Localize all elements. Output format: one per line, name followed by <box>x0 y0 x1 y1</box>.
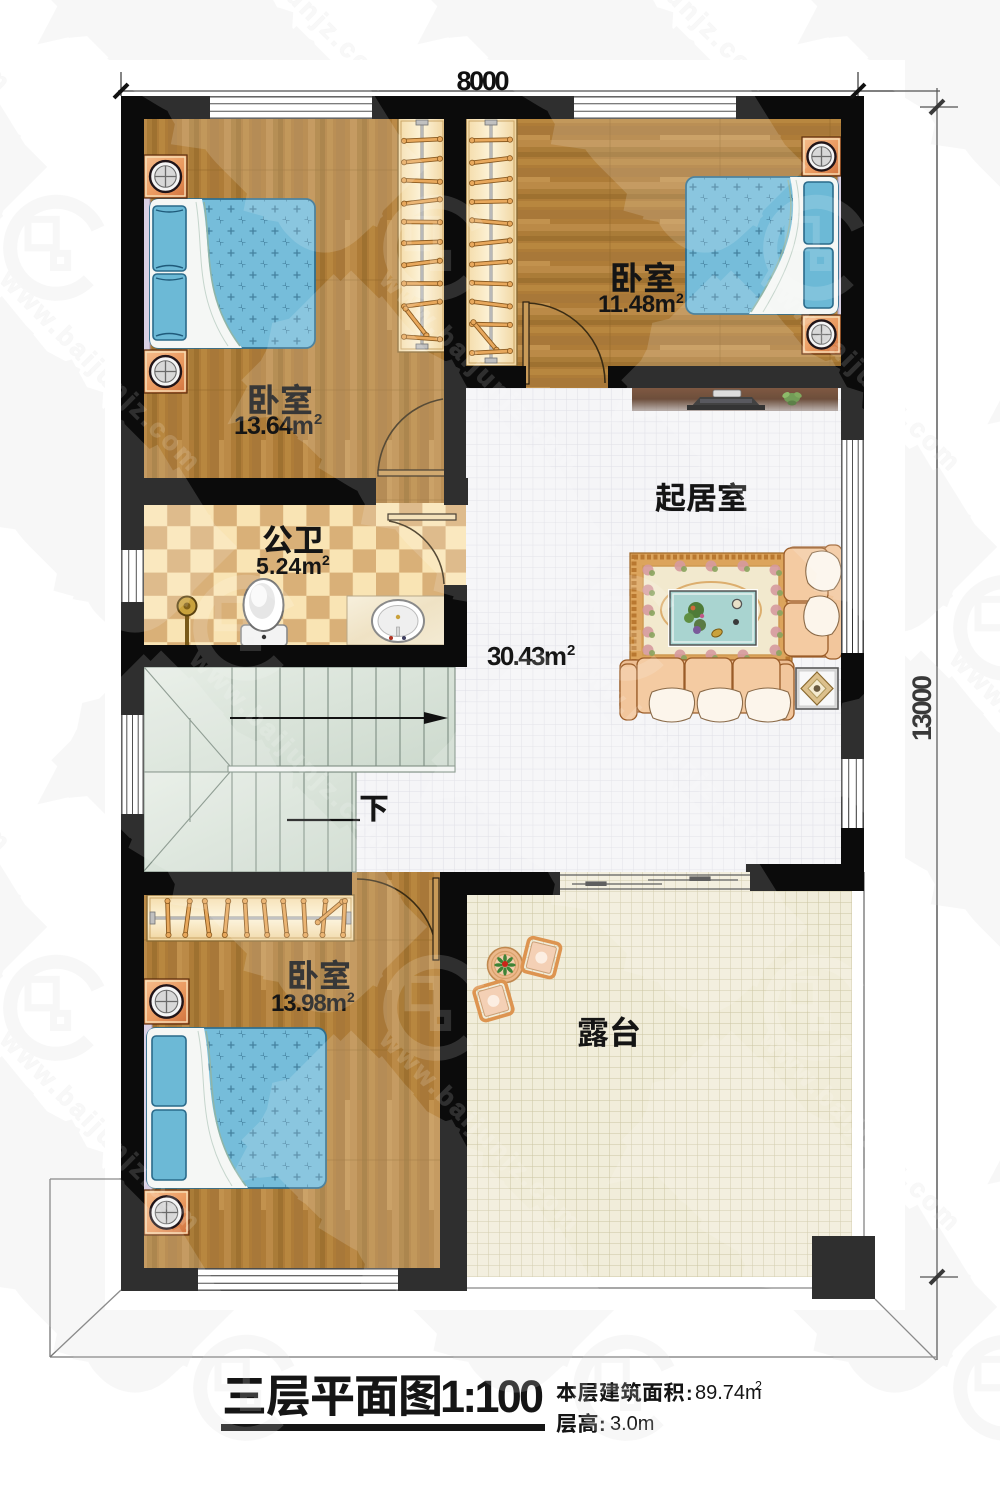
svg-text:11.48m: 11.48m <box>598 291 676 318</box>
svg-text:2: 2 <box>676 290 684 306</box>
svg-text:2: 2 <box>755 1379 762 1393</box>
svg-text::: : <box>686 1383 693 1405</box>
svg-text:89.74m: 89.74m <box>695 1382 762 1404</box>
svg-text:2: 2 <box>322 552 330 568</box>
svg-text:5.24m: 5.24m <box>256 553 322 579</box>
svg-text:8000: 8000 <box>457 66 510 96</box>
